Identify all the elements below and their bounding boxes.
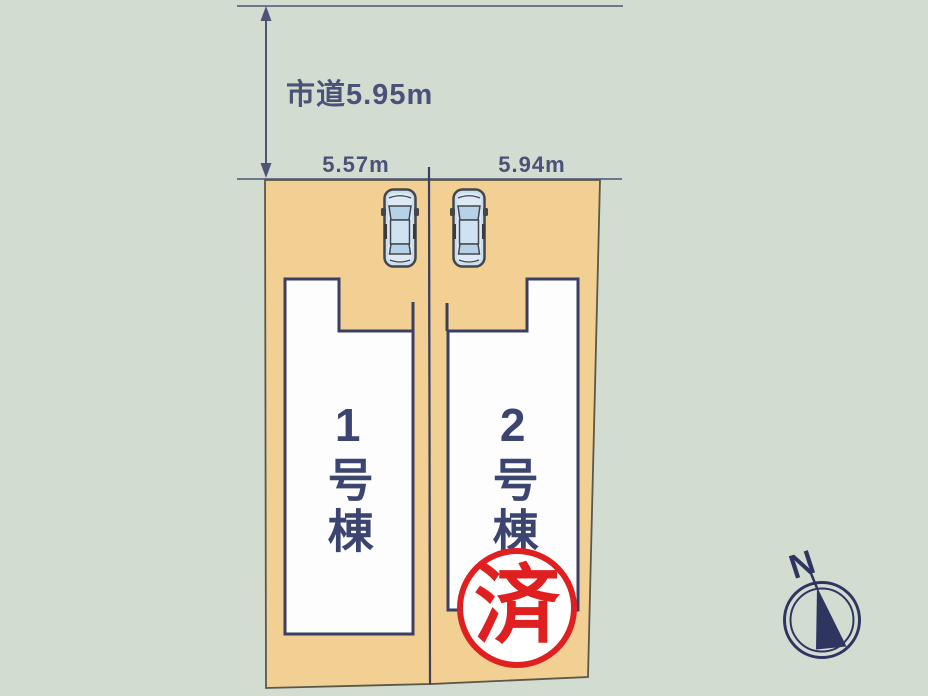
building-2-label: 2号棟 — [487, 399, 537, 558]
road-width-label: 市道5.95m — [286, 71, 433, 113]
lot-divider-line — [429, 167, 430, 684]
sold-stamp-label: 済 — [474, 563, 560, 649]
plot-layout-diagram: 市道5.95m 5.57m 5.94m 1号棟 2号棟 済 N — [0, 0, 928, 696]
sold-stamp-icon: 済 — [457, 548, 577, 668]
lot-1-width-label: 5.57m — [296, 152, 416, 178]
car-top-view-icon — [450, 190, 488, 267]
building-1-label: 1号棟 — [322, 399, 372, 558]
car-top-view-icon — [381, 190, 419, 267]
lot-2-width-label: 5.94m — [472, 152, 592, 178]
double-arrow-icon — [261, 6, 272, 178]
